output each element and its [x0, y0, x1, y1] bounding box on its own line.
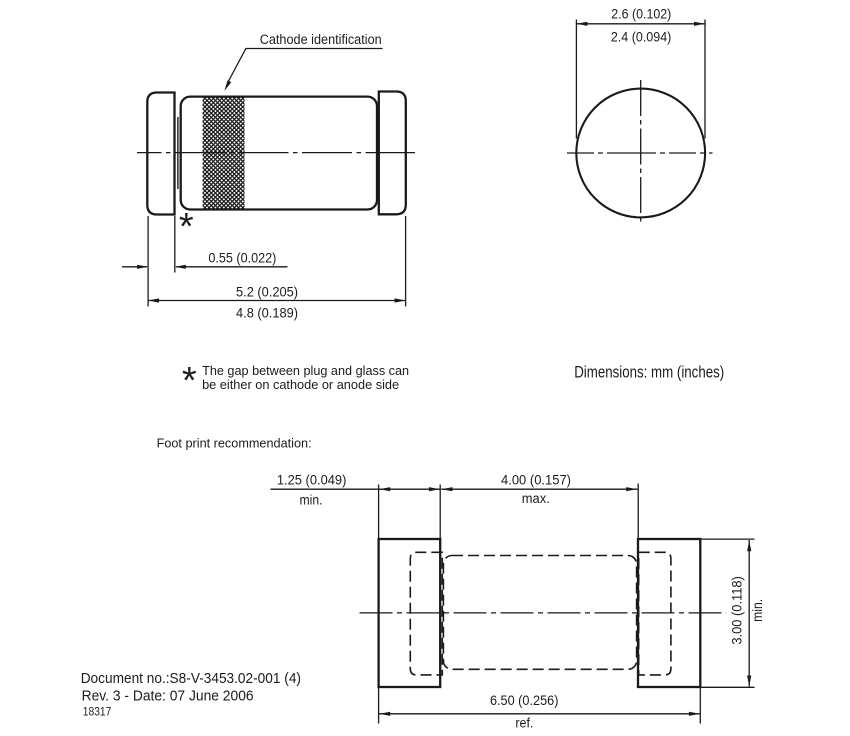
svg-text:2.6 (0.102): 2.6 (0.102) — [611, 7, 671, 22]
svg-text:4.00 (0.157): 4.00 (0.157) — [501, 473, 571, 488]
svg-text:2.4 (0.094): 2.4 (0.094) — [611, 29, 672, 44]
svg-text:ref.: ref. — [515, 715, 533, 730]
svg-text:Rev. 3 - Date: 07 June 2006: Rev. 3 - Date: 07 June 2006 — [82, 687, 254, 704]
svg-text:The gap between plug and glass: The gap between plug and glass can — [202, 363, 409, 378]
svg-text:Document no.:S8-V-3453.02-001: Document no.:S8-V-3453.02-001 (4) — [81, 670, 301, 687]
svg-text:min.: min. — [300, 492, 323, 507]
svg-text:*: * — [182, 360, 197, 402]
svg-text:*: * — [179, 206, 194, 248]
svg-text:18317: 18317 — [83, 707, 112, 719]
svg-text:1.25 (0.049): 1.25 (0.049) — [277, 473, 347, 488]
svg-text:5.2 (0.205): 5.2 (0.205) — [236, 285, 298, 300]
svg-text:max.: max. — [522, 491, 550, 506]
svg-text:min.: min. — [750, 599, 765, 622]
svg-text:3.00 (0.118): 3.00 (0.118) — [730, 576, 745, 645]
svg-text:0.55 (0.022): 0.55 (0.022) — [208, 250, 276, 265]
svg-text:Foot print recommendation:: Foot print recommendation: — [157, 435, 312, 450]
svg-text:4.8 (0.189): 4.8 (0.189) — [236, 306, 298, 321]
svg-text:Dimensions: mm (inches): Dimensions: mm (inches) — [574, 364, 724, 382]
svg-text:be either on cathode or anode: be either on cathode or anode side — [202, 377, 399, 392]
svg-text:6.50 (0.256): 6.50 (0.256) — [490, 693, 559, 708]
svg-text:Cathode identification: Cathode identification — [260, 32, 382, 47]
